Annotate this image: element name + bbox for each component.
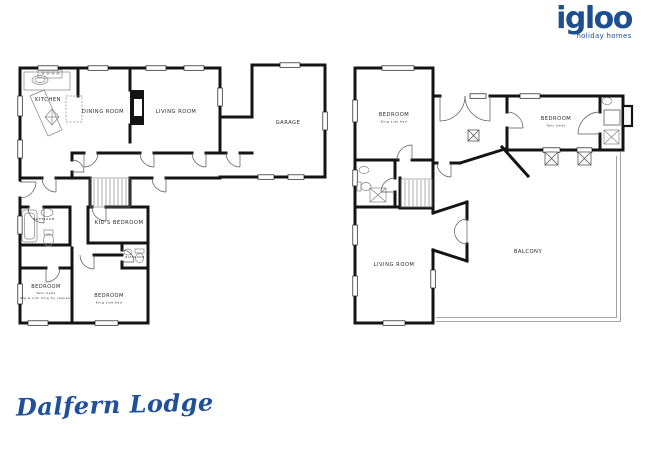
gf-kitchen-label: KITCHEN — [35, 97, 61, 103]
ff-windows — [353, 66, 592, 326]
gf-garage-label: GARAGE — [276, 120, 301, 126]
ground-floor-plan: KITCHEN DINING ROOM LIVING ROOM GARAGE B… — [18, 63, 328, 326]
ff-living-label: LIVING ROOM — [374, 262, 415, 268]
ff-stairs — [401, 179, 432, 207]
igloo-logo: igloo holiday homes — [546, 4, 642, 40]
ff-wall-bump — [623, 106, 632, 126]
ff-pillars — [468, 130, 591, 165]
gf-bathroom-label: BATHROOM — [33, 217, 54, 221]
gf-bedroom-king-label: BEDROOM — [94, 293, 124, 299]
gf-dining-label: DINING ROOM — [82, 109, 124, 115]
ff-bedroom-king-label: BEDROOM — [379, 112, 410, 118]
floorplan-page: KITCHEN DINING ROOM LIVING ROOM GARAGE B… — [0, 0, 650, 450]
gf-stairs — [90, 178, 130, 207]
gf-bedroom-king-sub: King size bed — [96, 301, 123, 305]
ff-bedroom-twin-sub: Twin beds — [545, 124, 565, 128]
ff-balcony-label: BALCONY — [514, 249, 543, 255]
gf-bedroom-twin-sub1: Twin beds — [35, 291, 55, 295]
gf-living-label: LIVING ROOM — [156, 109, 197, 115]
ff-bedroom-twin-label: BEDROOM — [541, 116, 572, 122]
gf-kids-bedroom-label: KID'S BEDROOM — [95, 220, 144, 226]
ff-bedroom-king-sub: King size bed — [381, 120, 408, 124]
floorplan-drawing: KITCHEN DINING ROOM LIVING ROOM GARAGE B… — [0, 0, 650, 450]
gf-bedroom-twin-label: BEDROOM — [31, 284, 61, 290]
property-name: Dalfern Lodge — [16, 387, 214, 421]
gf-walls — [20, 65, 325, 323]
gf-ensuite-label: BATHROOM — [125, 255, 144, 259]
gf-bedroom-twin-sub2: Zip & link king by request — [20, 296, 72, 300]
first-floor-plan: BEDROOM King size bed BEDROOM Twin beds … — [353, 66, 632, 326]
igloo-logo-wordmark: igloo — [546, 4, 642, 34]
gf-windows — [18, 63, 328, 326]
ff-walls — [355, 68, 623, 323]
gf-fireplace — [130, 90, 144, 125]
